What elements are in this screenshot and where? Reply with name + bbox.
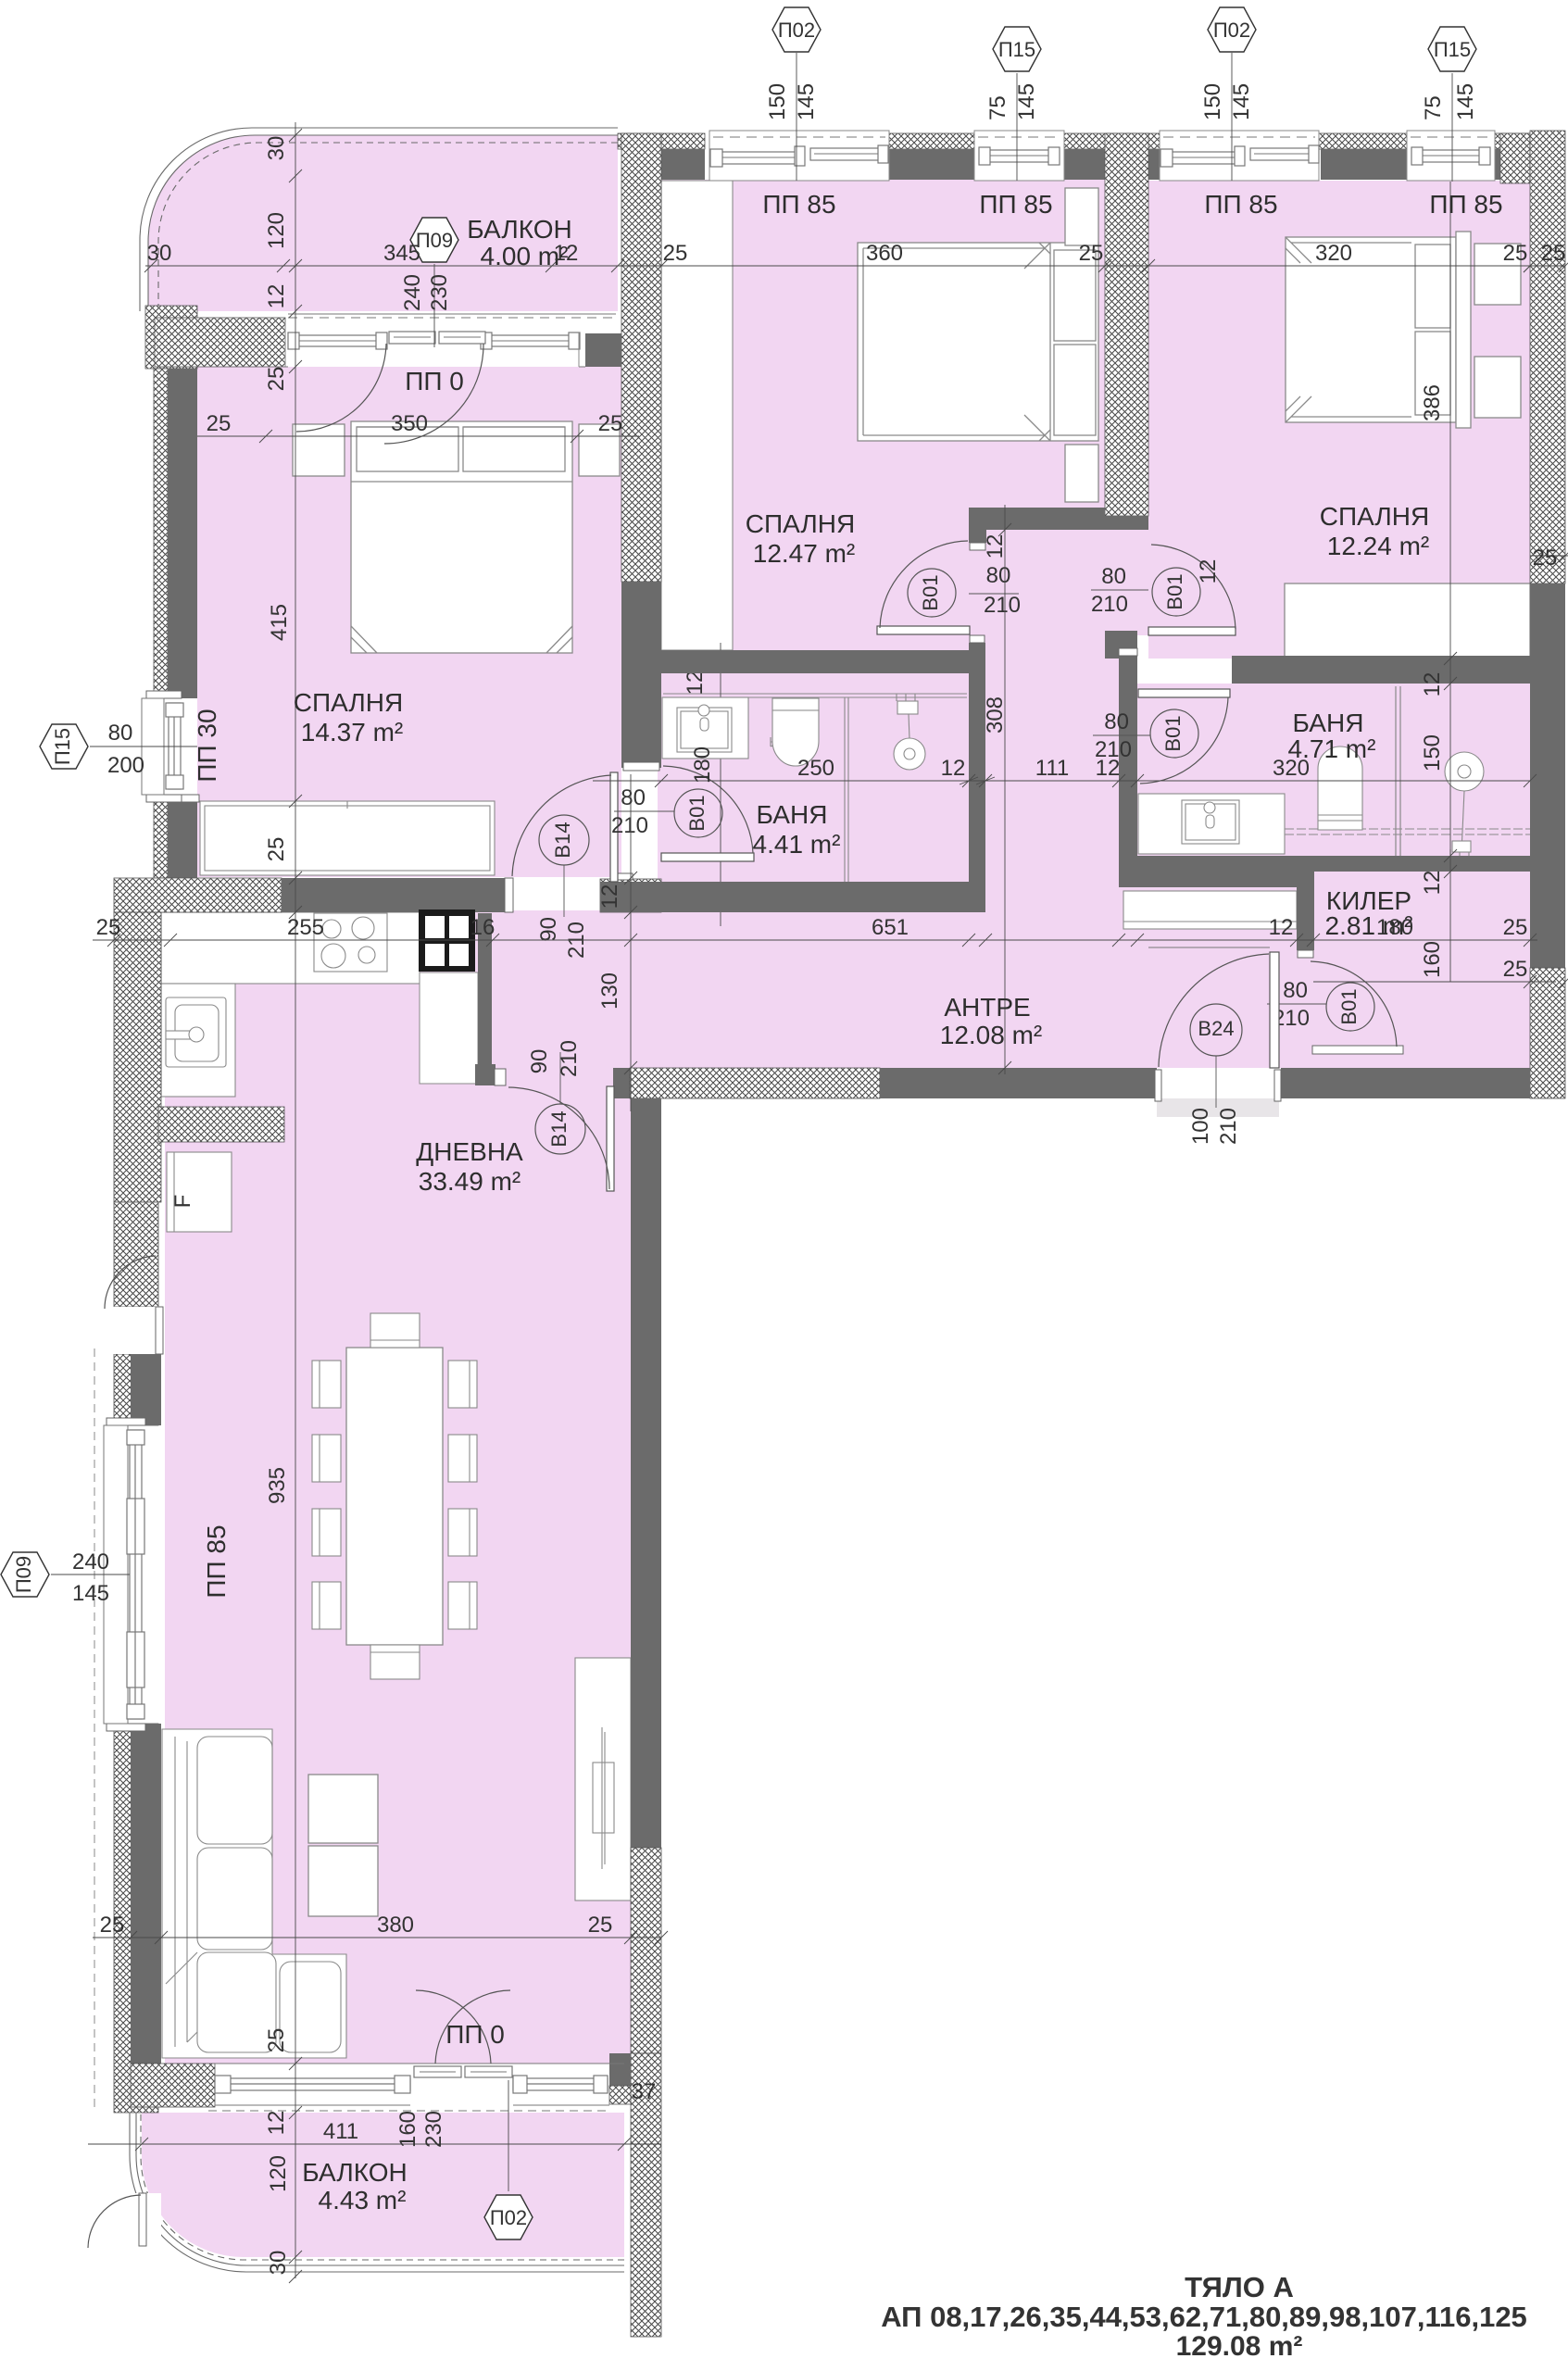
svg-text:130: 130	[597, 972, 622, 1010]
svg-text:25: 25	[1503, 241, 1528, 266]
svg-text:П15: П15	[1434, 38, 1471, 61]
svg-text:145: 145	[72, 1581, 109, 1606]
svg-text:240: 240	[400, 274, 425, 311]
svg-text:200: 200	[107, 753, 144, 778]
svg-text:ПП 85: ПП 85	[762, 190, 835, 219]
svg-text:25: 25	[1533, 546, 1558, 571]
svg-text:БАНЯ: БАНЯ	[757, 800, 828, 829]
svg-text:ПП 85: ПП 85	[1204, 190, 1277, 219]
svg-text:12: 12	[1196, 559, 1221, 584]
svg-text:380: 380	[377, 1913, 414, 1938]
svg-text:12: 12	[1420, 871, 1445, 896]
svg-text:B01: B01	[1161, 715, 1185, 751]
svg-text:25: 25	[207, 411, 232, 436]
svg-text:210: 210	[1091, 592, 1128, 617]
svg-text:14.37 m²: 14.37 m²	[301, 718, 404, 746]
svg-text:ДНЕВНА: ДНЕВНА	[416, 1137, 523, 1166]
svg-text:100: 100	[1188, 1108, 1213, 1145]
svg-text:25: 25	[100, 1913, 125, 1938]
svg-text:80: 80	[108, 721, 133, 746]
svg-text:12: 12	[264, 284, 289, 309]
svg-text:B14: B14	[547, 1110, 571, 1147]
svg-text:150: 150	[1420, 734, 1445, 772]
svg-text:12: 12	[1269, 915, 1294, 940]
svg-text:90: 90	[536, 917, 561, 942]
svg-text:12: 12	[683, 671, 708, 696]
svg-text:345: 345	[383, 241, 420, 266]
svg-text:12.08 m²: 12.08 m²	[940, 1021, 1043, 1049]
svg-text:B01: B01	[1163, 573, 1186, 609]
svg-text:ПП 0: ПП 0	[445, 2020, 505, 2049]
svg-text:30: 30	[266, 2251, 291, 2276]
svg-text:350: 350	[391, 411, 428, 436]
svg-text:80: 80	[621, 785, 646, 810]
svg-text:25: 25	[663, 241, 688, 266]
svg-text:П02: П02	[490, 2206, 527, 2229]
svg-text:П15: П15	[998, 38, 1035, 61]
svg-text:ПП 85: ПП 85	[979, 190, 1052, 219]
svg-text:12: 12	[264, 2111, 289, 2136]
svg-text:СПАЛНЯ: СПАЛНЯ	[1320, 502, 1429, 531]
svg-text:АНТРЕ: АНТРЕ	[944, 993, 1030, 1022]
svg-text:АП 08,17,26,35,44,53,62,71,80,: АП 08,17,26,35,44,53,62,71,80,89,98,107,…	[881, 2301, 1527, 2333]
svg-text:ПП 85: ПП 85	[1429, 190, 1502, 219]
svg-text:386: 386	[1420, 384, 1445, 421]
svg-text:320: 320	[1273, 756, 1310, 781]
svg-text:150: 150	[765, 83, 790, 120]
svg-text:651: 651	[872, 915, 909, 940]
svg-text:75: 75	[985, 95, 1010, 120]
svg-text:16: 16	[470, 915, 495, 940]
svg-text:БАЛКОН: БАЛКОН	[302, 2158, 407, 2187]
svg-text:12: 12	[941, 756, 966, 781]
svg-text:4.41 m²: 4.41 m²	[753, 830, 841, 859]
svg-text:145: 145	[1229, 83, 1254, 120]
svg-text:12: 12	[1096, 756, 1121, 781]
svg-text:12: 12	[1420, 672, 1445, 697]
svg-text:30: 30	[264, 136, 289, 161]
svg-text:935: 935	[265, 1467, 290, 1504]
svg-text:12.47 m²: 12.47 m²	[753, 539, 856, 568]
svg-text:B01: B01	[1337, 988, 1361, 1024]
svg-text:12: 12	[554, 241, 579, 266]
svg-text:25: 25	[598, 411, 623, 436]
svg-text:12: 12	[597, 884, 622, 910]
svg-text:ПП 30: ПП 30	[193, 709, 221, 782]
svg-text:411: 411	[323, 2119, 358, 2144]
svg-text:25: 25	[264, 837, 289, 862]
svg-text:250: 250	[797, 756, 834, 781]
svg-text:210: 210	[984, 593, 1021, 618]
svg-text:75: 75	[1421, 95, 1446, 120]
svg-text:360: 360	[866, 241, 903, 266]
svg-text:25: 25	[264, 367, 289, 392]
svg-text:П02: П02	[1213, 19, 1250, 42]
svg-text:210: 210	[611, 813, 648, 838]
svg-text:80: 80	[1283, 978, 1308, 1003]
svg-text:СПАЛНЯ: СПАЛНЯ	[294, 688, 403, 717]
svg-text:145: 145	[1014, 83, 1039, 120]
svg-text:П09: П09	[12, 1556, 35, 1593]
svg-text:210: 210	[557, 1040, 582, 1077]
svg-text:B01: B01	[685, 795, 709, 831]
svg-text:4.43 m²: 4.43 m²	[319, 2186, 407, 2214]
svg-text:ТЯЛО А: ТЯЛО А	[1185, 2271, 1294, 2303]
svg-text:25: 25	[264, 2028, 289, 2053]
svg-text:25: 25	[588, 1913, 613, 1938]
svg-text:B14: B14	[551, 822, 574, 858]
svg-text:25: 25	[1503, 957, 1528, 982]
svg-text:308: 308	[983, 696, 1008, 734]
svg-text:B24: B24	[1198, 1017, 1234, 1040]
svg-text:90: 90	[527, 1049, 552, 1074]
svg-text:145: 145	[1453, 83, 1478, 120]
svg-text:160: 160	[1420, 941, 1445, 978]
svg-text:210: 210	[1216, 1108, 1241, 1145]
svg-text:160: 160	[395, 2111, 420, 2148]
svg-text:12: 12	[983, 534, 1008, 559]
svg-text:25: 25	[1079, 241, 1104, 266]
svg-text:БАЛКОН: БАЛКОН	[467, 215, 571, 244]
svg-text:150: 150	[1200, 83, 1225, 120]
svg-text:ПП 0: ПП 0	[405, 367, 464, 395]
svg-text:255: 255	[287, 915, 324, 940]
svg-text:240: 240	[72, 1549, 109, 1574]
svg-text:37: 37	[632, 2079, 657, 2104]
svg-text:80: 80	[1104, 709, 1129, 734]
svg-text:12.24 m²: 12.24 m²	[1327, 532, 1430, 560]
svg-text:415: 415	[267, 604, 292, 641]
svg-text:25: 25	[1503, 915, 1528, 940]
svg-text:111: 111	[1035, 756, 1069, 781]
svg-text:230: 230	[421, 2111, 446, 2148]
svg-text:320: 320	[1315, 241, 1352, 266]
svg-text:180: 180	[690, 746, 715, 784]
svg-text:СПАЛНЯ: СПАЛНЯ	[746, 509, 855, 538]
svg-text:B01: B01	[919, 574, 942, 610]
svg-text:80: 80	[1101, 564, 1126, 589]
svg-text:ПП 85: ПП 85	[202, 1524, 231, 1598]
svg-text:33.49 m²: 33.49 m²	[419, 1167, 521, 1196]
svg-text:П15: П15	[51, 728, 74, 765]
svg-text:120: 120	[264, 212, 289, 249]
svg-text:F: F	[170, 1195, 195, 1209]
svg-text:25: 25	[96, 915, 121, 940]
svg-text:180: 180	[1376, 915, 1413, 940]
svg-text:120: 120	[266, 2155, 291, 2192]
svg-text:145: 145	[794, 83, 819, 120]
svg-text:30: 30	[147, 241, 172, 266]
svg-text:129.08 m²: 129.08 m²	[1176, 2331, 1303, 2362]
svg-text:230: 230	[427, 274, 452, 311]
svg-text:П09: П09	[416, 229, 453, 252]
svg-text:80: 80	[986, 563, 1011, 588]
svg-text:П02: П02	[778, 19, 815, 42]
svg-text:БАНЯ: БАНЯ	[1293, 709, 1364, 737]
svg-text:25: 25	[1541, 241, 1566, 266]
